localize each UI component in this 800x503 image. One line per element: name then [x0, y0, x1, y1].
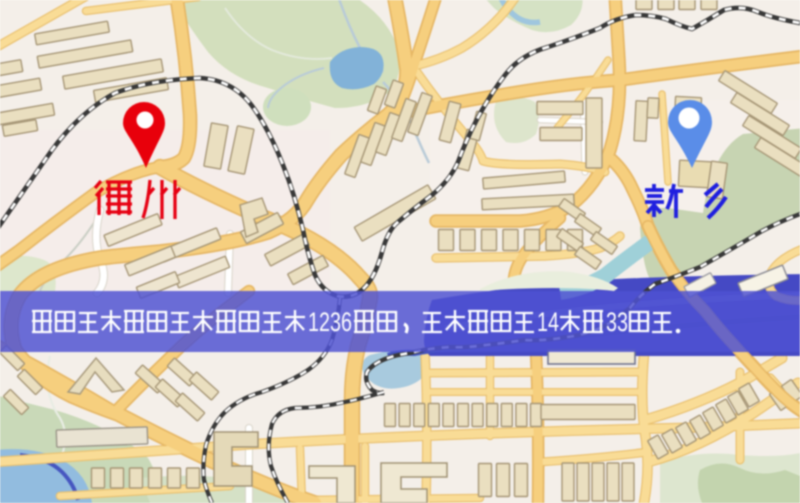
svg-text:33: 33	[606, 307, 628, 337]
svg-text:1236: 1236	[308, 307, 352, 337]
svg-text:14: 14	[537, 307, 559, 337]
